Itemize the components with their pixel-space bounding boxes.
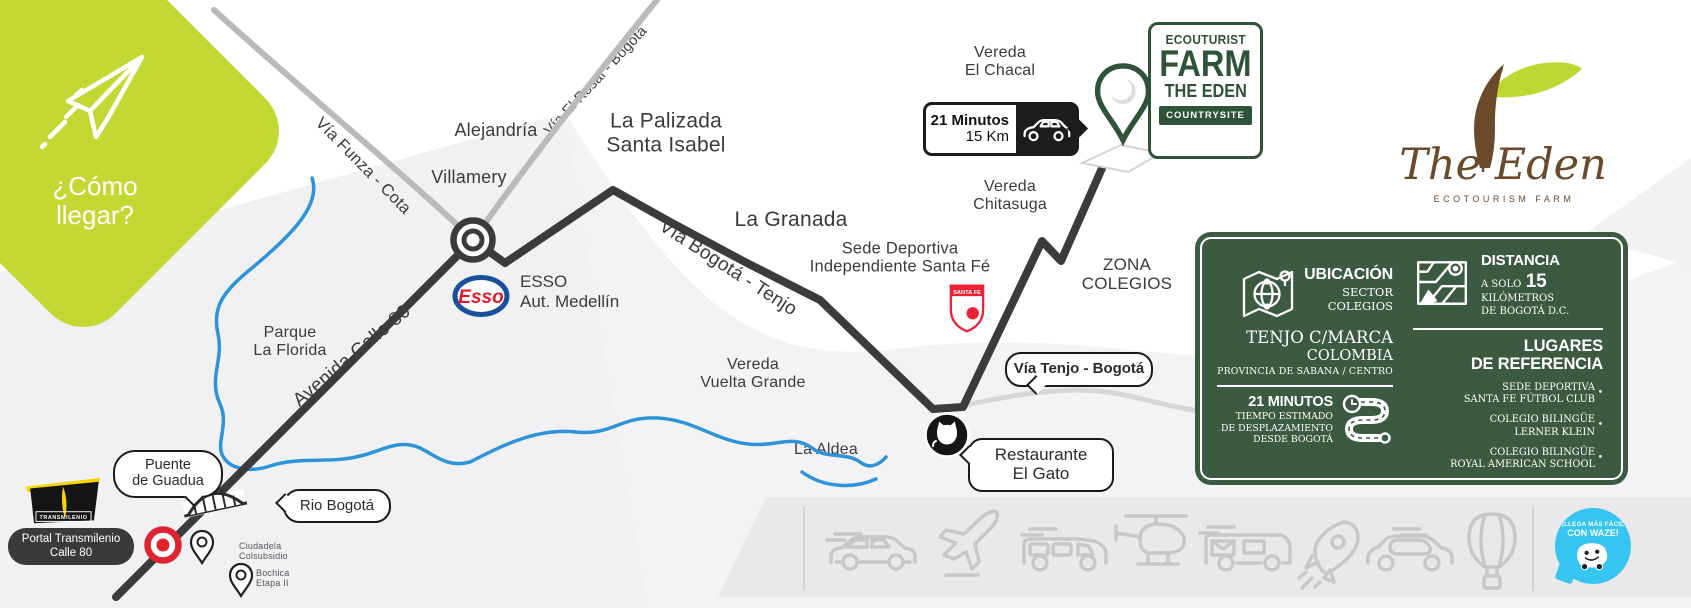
panel-reference-item: COLEGIO BILINGÜE ROYAL AMERICAN SCHOOL — [1413, 447, 1603, 471]
road-via-el-rosal — [473, 0, 657, 240]
farm-badge-line2: FARM — [1159, 47, 1251, 81]
panel-divider-right — [1413, 328, 1603, 330]
road-via-tenjo-gray — [948, 390, 1212, 413]
brand-script: The Eden — [1398, 140, 1608, 190]
farm-badge-line3: THE EDEN — [1164, 82, 1246, 101]
panel-tiempo-title: 21 MINUTOS — [1217, 394, 1333, 410]
farm-map-pin-icon — [1092, 62, 1154, 150]
panel-ubicacion-title: UBICACIÓN — [1304, 266, 1393, 284]
waze-line2: CON WAZE! — [1567, 528, 1619, 538]
roundabout-icon — [454, 221, 493, 260]
panel-ubicacion-subtitle: SECTOR COLEGIOS — [1304, 286, 1393, 314]
pin-bochica-icon — [228, 562, 254, 598]
waze-line1: ¡LLEGA MÁS FÁCIL — [1562, 521, 1624, 528]
street-map-icon — [1413, 252, 1471, 312]
panel-distancia-suffix: KILÓMETROS DE BOGOTÁ D.C. — [1481, 293, 1569, 318]
santa-fe-text: SANTA FE — [953, 290, 981, 296]
santa-fe-shield: SANTA FE — [948, 283, 986, 334]
camper-icon — [1200, 523, 1296, 574]
travel-time-badge: 21 Minutos 15 Km — [923, 102, 1079, 156]
panel-divider-left — [1217, 385, 1393, 387]
info-panel: UBICACIÓN SECTOR COLEGIOS TENJO C/MARCA … — [1195, 232, 1628, 485]
callout-via-tenjo-bogota: Vía Tenjo - Bogotá — [1005, 352, 1153, 387]
helicopter-icon — [1108, 510, 1200, 574]
panel-province: PROVINCIA DE SABANA / CENTRO — [1217, 366, 1393, 377]
como-llegar-title: ¿Cómo llegar? — [30, 172, 160, 229]
waze-ghost-icon — [1575, 540, 1611, 572]
brand-subtitle: ECOTOURISM FARM — [1404, 194, 1604, 204]
river-rio-bogota — [215, 178, 886, 485]
road-clock-icon — [1341, 394, 1393, 446]
compact-car-icon — [1362, 525, 1456, 577]
farm-badge: ECOUTURIST FARM THE EDEN COUNTRYSITE — [1148, 22, 1263, 159]
esso-name: ESSO — [520, 272, 619, 292]
badge-minutes: 21 Minutos — [931, 113, 1009, 129]
rocket-icon — [1294, 516, 1366, 592]
esso-logo: Esso — [452, 274, 510, 318]
callout-rio-text: Rio Bogotá — [300, 498, 374, 515]
car-icon — [1021, 116, 1071, 142]
pin-ciudadela-icon — [189, 529, 215, 565]
plane-icon — [930, 503, 1022, 579]
callout-via-tenjo-text: Vía Tenjo - Bogotá — [1014, 361, 1145, 378]
panel-reference-item: SEDE DEPORTIVA SANTA FE FÚTBOL CLUB — [1413, 382, 1603, 406]
esso-logo-text: Esso — [458, 287, 503, 308]
panel-lugares-title: LUGARES DE REFERENCIA — [1413, 337, 1603, 374]
waze-badge: ¡LLEGA MÁS FÁCIL CON WAZE! — [1555, 508, 1631, 584]
map-globe-icon — [1240, 266, 1296, 324]
panel-distancia-value: 15 — [1526, 271, 1547, 292]
callout-rio-bogota: Rio Bogotá — [283, 489, 391, 523]
band-divider-right — [1532, 507, 1534, 591]
red-point-marker — [148, 530, 179, 561]
infographic-map: ¿Cómo llegar? — [0, 0, 1691, 608]
callout-puente-de-guadua: Puente de Guadua — [113, 450, 223, 498]
panel-place: TENJO C/MARCA — [1217, 328, 1393, 347]
callout-restaurante-el-gato: Restaurante El Gato — [968, 438, 1114, 492]
paper-plane-icon — [30, 45, 155, 170]
band-divider-left — [803, 507, 805, 591]
transmilenio-logo: TRANSMILENIO — [22, 476, 106, 532]
wagon-car-icon — [825, 528, 921, 574]
callout-puente-text: Puente de Guadua — [132, 458, 204, 490]
esso-subtitle: Aut. Medellín — [520, 292, 619, 312]
transmilenio-text: TRANSMILENIO — [40, 515, 88, 521]
panel-reference-item: COLEGIO BILINGÜE LERNER KLEIN — [1413, 414, 1603, 438]
panel-distancia-prefix: A SOLO — [1481, 279, 1521, 290]
panel-tiempo-subtitle: TIEMPO ESTIMADO DE DESPLAZAMIENTO DESDE … — [1217, 411, 1333, 446]
farm-badge-tag: COUNTRYSITE — [1159, 106, 1252, 125]
van-icon — [1018, 525, 1110, 575]
balloon-icon — [1462, 512, 1522, 592]
callout-portal-transmilenio: Portal Transmilenio Calle 80 — [8, 528, 134, 565]
callout-restaurante-text: Restaurante El Gato — [995, 446, 1088, 483]
panel-country: COLOMBIA — [1217, 348, 1393, 364]
panel-distancia-title: DISTANCIA — [1481, 252, 1569, 269]
badge-distance: 15 Km — [966, 129, 1009, 145]
